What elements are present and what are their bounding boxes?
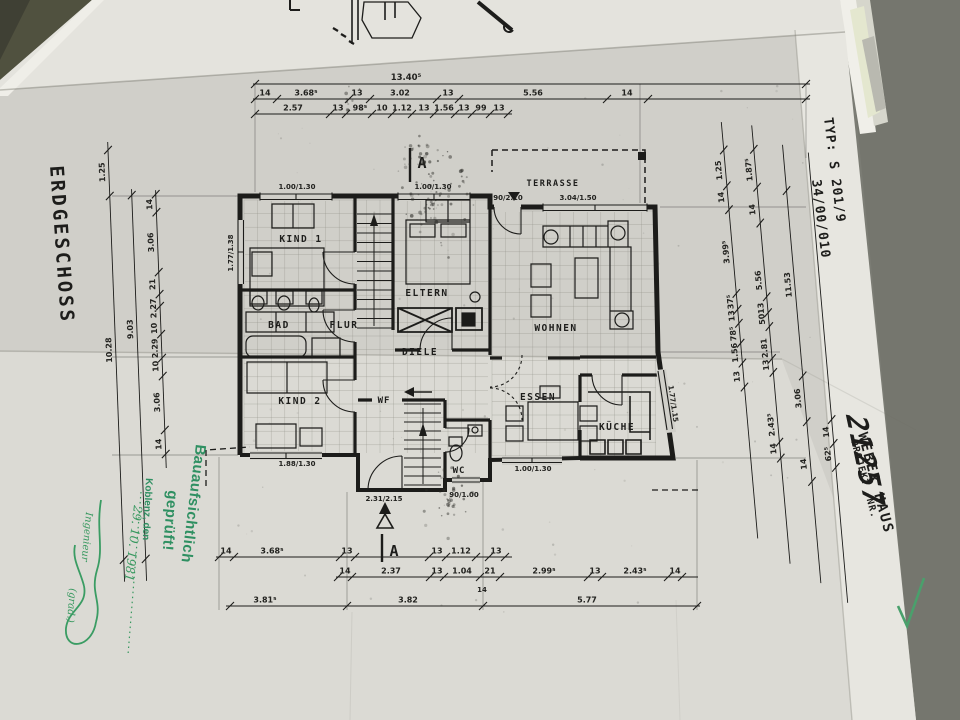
dim-label: 1.56 [730, 342, 741, 363]
room-label-wf: WF [378, 396, 391, 406]
dim-label: 14 [621, 89, 633, 98]
dim-label: 13 [351, 89, 362, 98]
dim-label: 13 [341, 547, 352, 556]
dim-label: 14 [768, 442, 778, 454]
dim-label: 13 [442, 89, 453, 98]
dim-label: 5.56 [523, 89, 543, 98]
dim-label: 3.02 [390, 89, 410, 98]
window-label-wohnen: 3.04/1.50 [559, 194, 596, 202]
dim-label: 2.81 [759, 337, 770, 358]
room-label-kueche: KÜCHE [599, 422, 635, 433]
room-label-essen: ESSEN [520, 392, 556, 403]
dim-label: 3.82 [398, 596, 418, 605]
dim-label: 2.43⁵ [623, 567, 647, 576]
dim-label: 13 [732, 371, 742, 383]
dim-label: 62⁵ [823, 446, 833, 462]
room-label-terrasse: TERRASSE [527, 179, 580, 189]
dim-label: 14 [220, 547, 232, 556]
dim-label: 2.27 [149, 298, 159, 318]
dim-label: 13 [761, 359, 771, 371]
dim-label: 10 [150, 322, 159, 334]
dim-label: 21 [484, 567, 496, 576]
dim-label: 13 [431, 547, 442, 556]
window-label-kind1-left: 1.77/1.38 [227, 234, 235, 271]
dim-label: 2.29 [150, 338, 160, 359]
dim-label: 13 [493, 104, 504, 113]
dim-label: 14 [748, 203, 758, 215]
room-label-kind2: KIND 2 [278, 396, 321, 407]
dim-label: 13 [490, 547, 501, 556]
dim-label: 14 [716, 191, 726, 203]
window-label-essen-bottom: 1.00/1.30 [514, 465, 551, 473]
dim-label: 3.06 [146, 232, 156, 253]
dim-label: 5.56 [753, 270, 764, 291]
room-label-wc: WC [453, 466, 466, 476]
dim-label: 37⁵ [725, 294, 735, 310]
window-label-kind2-bottom: 1.88/1.30 [278, 460, 315, 468]
dim-label: 13 [418, 104, 429, 113]
dim-label: 14 [477, 586, 487, 594]
floorplan-photo: A A KIND 1 ELTERN BAD FLUR DIELE KIND 2 … [0, 0, 960, 720]
dim-label: 14 [799, 458, 809, 470]
dim-label: 2.57 [283, 104, 303, 113]
room-label-kind1: KIND 1 [279, 234, 322, 245]
dim-label: 5.77 [577, 596, 597, 605]
dim-label: 13 [458, 104, 469, 113]
dim-label: 14 [669, 567, 681, 576]
window-label-eltern-top: 1.00/1.30 [414, 183, 451, 191]
dim-label: 14 [154, 438, 163, 450]
dim-label: 10 [151, 360, 160, 372]
dim-label: 1.25 [714, 160, 725, 181]
dim-label: 13 [756, 302, 766, 314]
dim-label: 3.81⁵ [253, 596, 277, 605]
dim-label: 13 [332, 104, 343, 113]
dim-label: 14 [145, 198, 154, 210]
dim-label: 1.04 [452, 567, 472, 576]
room-label-wohnen: WOHNEN [534, 323, 577, 334]
window-label-kind1-top: 1.00/1.30 [278, 183, 315, 191]
dim-label: 9.03 [126, 319, 136, 339]
dim-label: 1.25 [97, 162, 107, 183]
dim-label: 10.28 [104, 337, 114, 363]
dim-label: 13 [727, 310, 737, 322]
dim-label: 14 [259, 89, 271, 98]
dim-label: 78⁵ [728, 326, 738, 342]
dim-label: 99 [475, 104, 487, 113]
door-label-entry: 2.31/2.15 [365, 495, 402, 503]
dim-label: 21 [148, 278, 157, 290]
dim-label: 3.06 [793, 388, 804, 409]
room-label-eltern: ELTERN [405, 288, 448, 299]
dim-label: 10 [376, 104, 388, 113]
dim-label: 13.40⁵ [391, 73, 422, 83]
dim-label: 2.99⁵ [532, 567, 556, 576]
dim-label: 14 [339, 567, 351, 576]
dim-label: 1.12 [451, 547, 471, 556]
dim-label: 2.37 [381, 567, 401, 576]
dim-label: 98⁵ [353, 104, 368, 113]
dim-label: 3.68⁵ [294, 89, 318, 98]
room-label-diele: DIELE [402, 347, 438, 358]
dim-label: 1.12 [392, 104, 412, 113]
room-label-flur: FLUR [330, 320, 359, 331]
dim-label: 50 [757, 313, 767, 325]
dim-label: 1.56 [434, 104, 454, 113]
dim-label: 14 [821, 426, 831, 438]
dim-label: 13 [589, 567, 600, 576]
room-label-bad: BAD [268, 320, 290, 331]
dim-label: 3.68⁵ [260, 547, 284, 556]
door-label-terrace: 90/2.10 [493, 194, 523, 202]
dim-label: 13 [431, 567, 442, 576]
dim-label: 3.06 [152, 392, 162, 413]
